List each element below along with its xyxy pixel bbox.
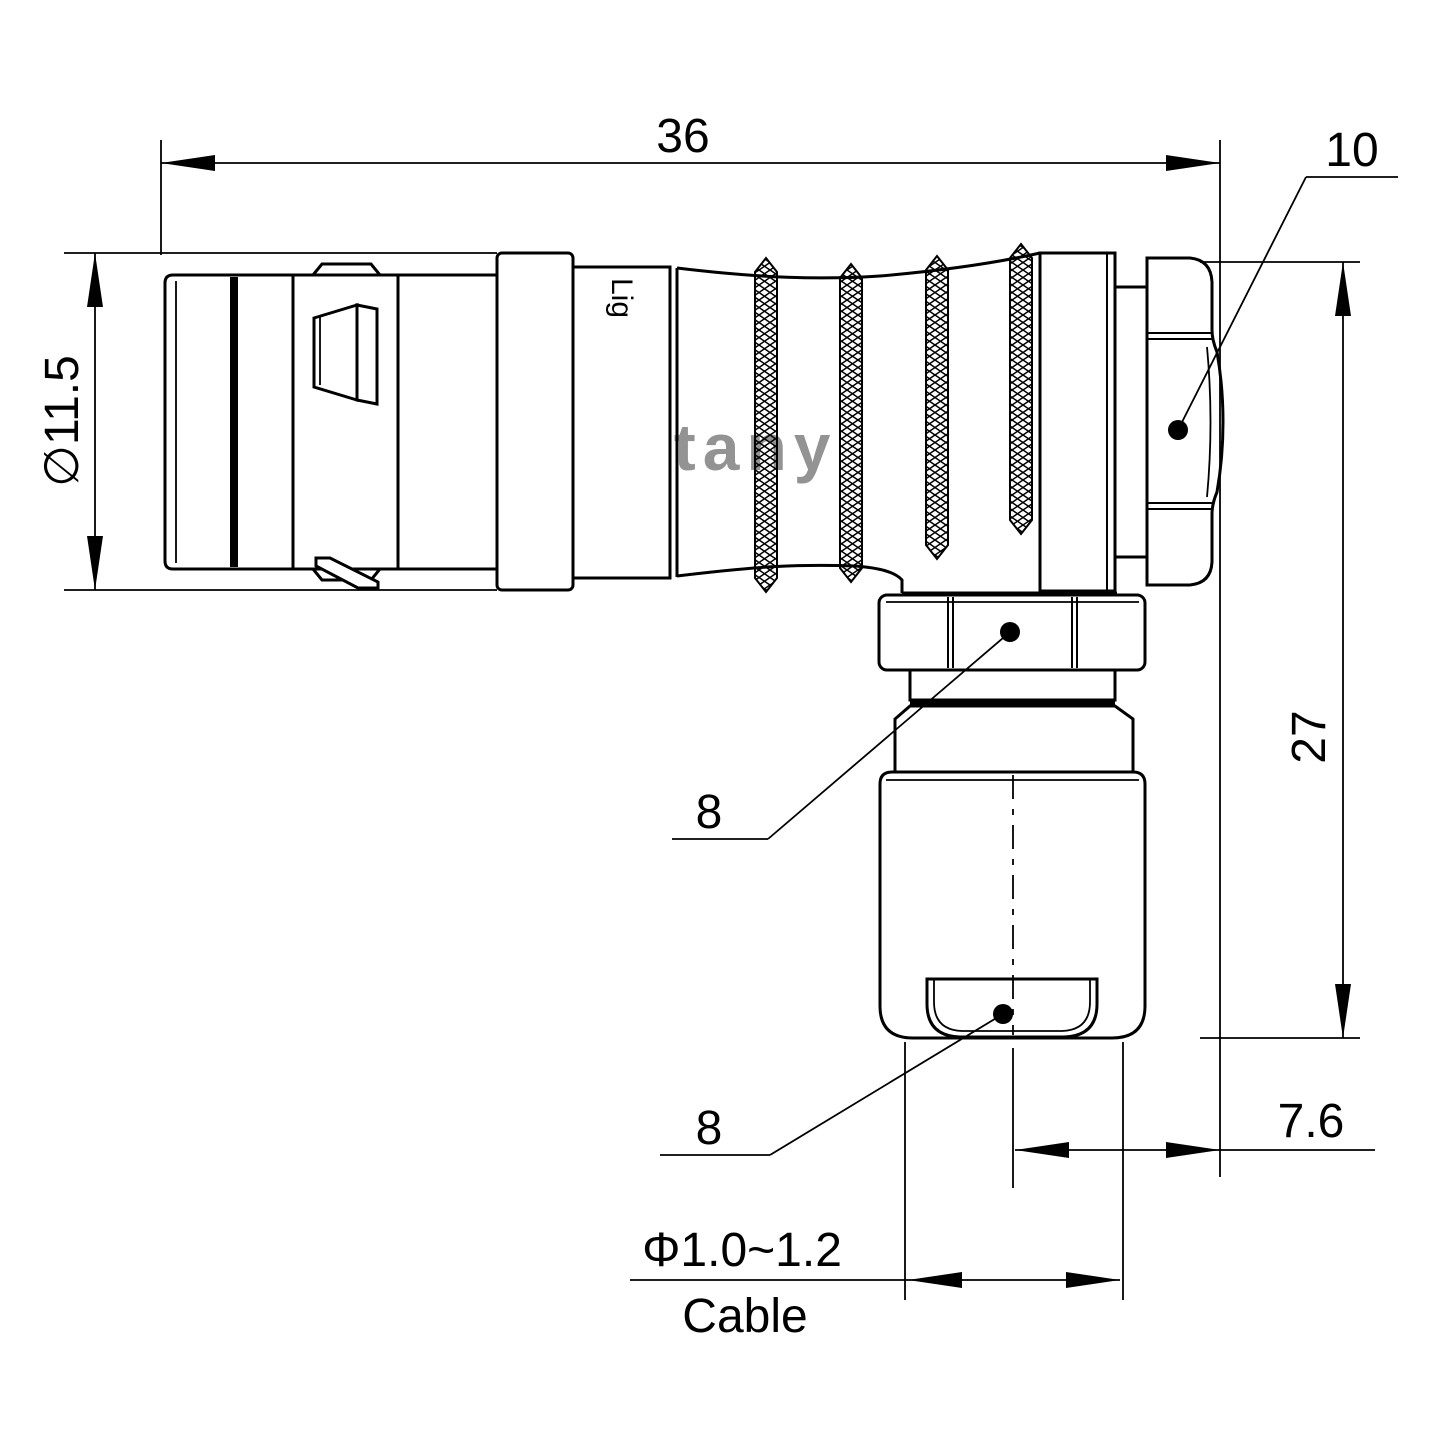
bayonet-lug-side <box>357 305 377 404</box>
dim-shell-diameter-value: ∅11.5 <box>36 355 89 487</box>
technical-drawing: Lightany <box>0 0 1440 1440</box>
front-sleeve <box>165 275 293 569</box>
dim-height: 27 <box>1200 262 1360 1038</box>
arrowhead-right <box>1166 155 1220 171</box>
part-marking-text: Lig <box>605 278 638 318</box>
knurl-band-2 <box>840 264 862 582</box>
knurl-band-1 <box>755 258 777 592</box>
arrowhead-left <box>908 1272 962 1288</box>
arrowhead-down <box>87 536 103 590</box>
arrowhead-up <box>87 253 103 307</box>
knurl-band-4 <box>1010 244 1032 534</box>
leader-line <box>770 1014 1003 1155</box>
arrowhead-down <box>1335 984 1351 1038</box>
dim-height-value: 27 <box>1283 710 1336 763</box>
arrowhead-right <box>1066 1272 1120 1288</box>
arrowhead-left <box>161 155 215 171</box>
connector-view <box>165 244 1223 1038</box>
plain-section <box>398 275 497 569</box>
drawing-canvas: Lightany <box>0 0 1440 1440</box>
arrowhead-up <box>1335 262 1351 316</box>
dim-gland-nut-value: 8 <box>696 1102 723 1155</box>
arrowhead-left <box>1015 1142 1069 1158</box>
dim-total-length-value: 36 <box>656 110 709 163</box>
top-key-notch <box>313 264 380 275</box>
dim-coupling-nut-value: 8 <box>696 786 723 839</box>
max-dia-section <box>497 253 573 590</box>
hex-end-cap <box>1147 258 1223 585</box>
dim-cable-offset: 7.6 <box>1013 1048 1375 1188</box>
dim-cable-offset-value: 7.6 <box>1278 1095 1345 1148</box>
dim-cable-range: Φ1.0~1.2 Cable <box>630 1042 1123 1343</box>
dim-cap-value: 10 <box>1325 124 1378 177</box>
dim-cable-range-value: Φ1.0~1.2 <box>642 1224 842 1277</box>
leader-dot <box>1168 420 1188 440</box>
sleeve-dark-band <box>230 277 238 567</box>
knurl-band-3 <box>926 256 948 559</box>
leader-dot <box>1000 622 1020 642</box>
arrowhead-right <box>1166 1142 1220 1158</box>
gland-neck <box>910 670 1115 700</box>
rear-flange <box>1040 253 1115 591</box>
neck-ring <box>1115 287 1147 557</box>
grip-bottom-edge <box>677 565 902 593</box>
leader-dot <box>993 1004 1013 1024</box>
gland-shoulder <box>895 706 1133 772</box>
dim-cable-label: Cable <box>682 1290 807 1343</box>
